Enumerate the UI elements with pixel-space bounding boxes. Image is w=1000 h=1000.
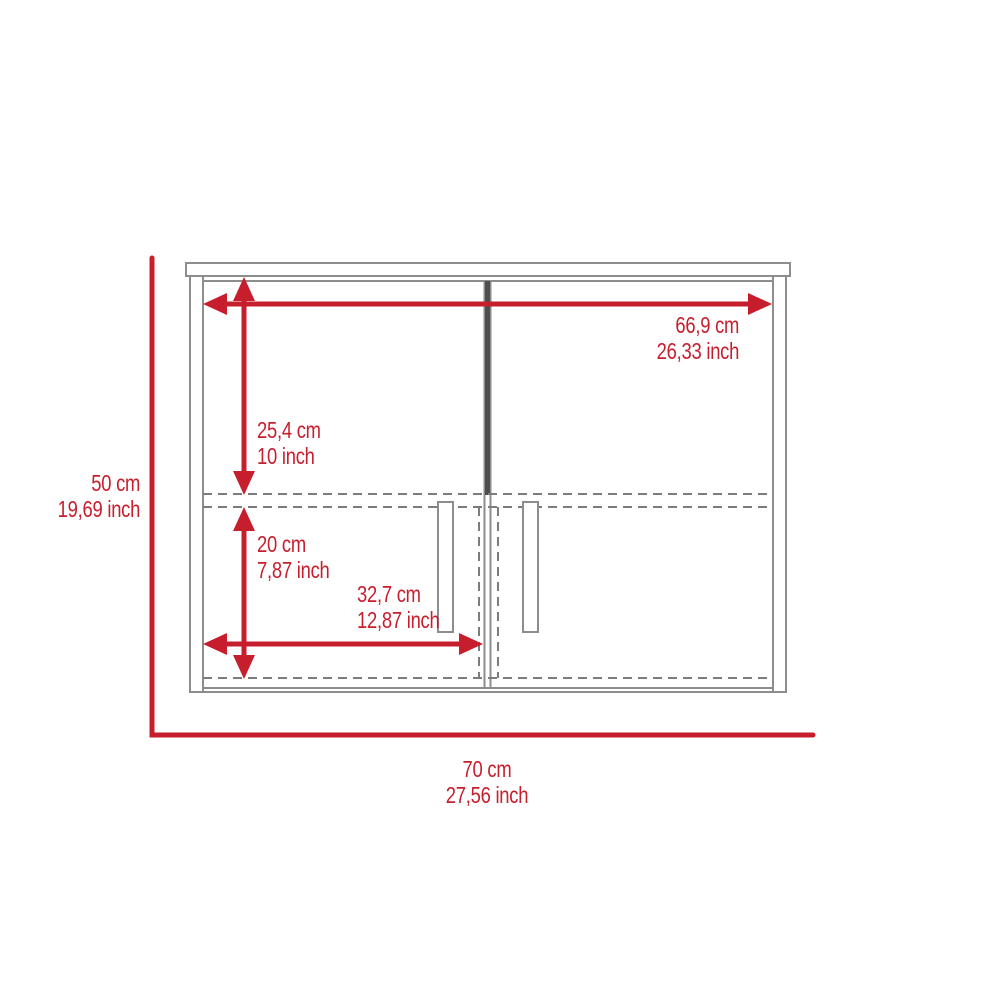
overall-width-inch: 27,56 inch <box>367 782 607 808</box>
overall-height-inch: 19,69 inch <box>57 496 140 522</box>
lower-section-arrowhead-bottom <box>233 655 255 679</box>
label-upper-section-height: 25,4 cm 10 inch <box>257 417 321 469</box>
left-door-handle <box>438 502 453 632</box>
door-span-arrowhead-right <box>748 293 772 315</box>
lower-section-height-cm: 20 cm <box>257 531 330 557</box>
dimension-diagram: 66,9 cm 26,33 inch 25,4 cm 10 inch 50 cm… <box>0 0 1000 1000</box>
upper-section-height-inch: 10 inch <box>257 443 321 469</box>
lower-section-arrowhead-top <box>233 507 255 531</box>
overall-width-cm: 70 cm <box>367 756 607 782</box>
label-door-span-width: 66,9 cm 26,33 inch <box>656 312 739 364</box>
overall-height-cm: 50 cm <box>57 470 140 496</box>
upper-section-height-cm: 25,4 cm <box>257 417 321 443</box>
single-door-width-inch: 12,87 inch <box>357 607 440 633</box>
door-span-width-cm: 66,9 cm <box>656 312 739 338</box>
single-door-width-cm: 32,7 cm <box>357 581 440 607</box>
label-overall-width: 70 cm 27,56 inch <box>367 756 607 808</box>
door-gap-shadow <box>485 281 490 495</box>
label-single-door-width: 32,7 cm 12,87 inch <box>357 581 440 633</box>
lower-section-height-inch: 7,87 inch <box>257 557 330 583</box>
single-door-arrowhead-left <box>203 633 227 655</box>
door-span-arrowhead-left <box>203 293 227 315</box>
upper-section-arrowhead-bottom <box>233 471 255 495</box>
right-door-handle <box>523 502 538 632</box>
single-door-arrowhead-right <box>459 633 483 655</box>
cabinet-top-panel <box>186 263 790 276</box>
label-overall-height: 50 cm 19,69 inch <box>57 470 140 522</box>
cabinet-line-drawing <box>0 0 1000 1000</box>
label-lower-section-height: 20 cm 7,87 inch <box>257 531 330 583</box>
door-span-width-inch: 26,33 inch <box>656 338 739 364</box>
